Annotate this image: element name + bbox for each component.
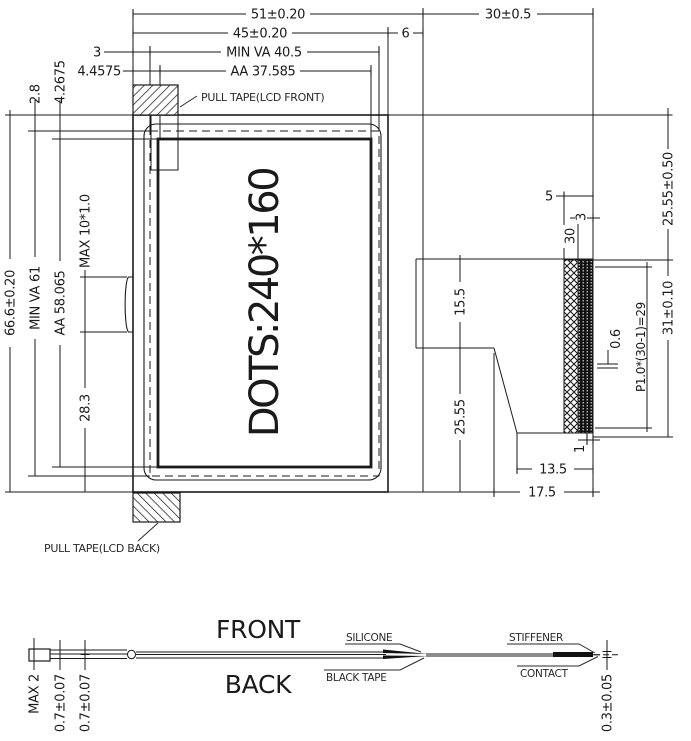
dim-tail-13-5: 13.5	[539, 463, 567, 478]
profile-back-label: BACK	[225, 670, 292, 699]
black-tape-label: BLACK TAPE	[326, 672, 387, 684]
dim-polarizer-top: 0.7±0.07	[54, 674, 69, 732]
dim-va-left-offset: 3	[93, 46, 101, 61]
dim-contact-len: 3	[575, 213, 590, 221]
lcd-mechanical-drawing: 51±0.20 30±0.5 45±0.20 6 MIN VA 40.5 3 A…	[0, 0, 691, 741]
pull-tape-back-label: PULL TAPE(LCD BACK)	[44, 542, 160, 555]
pull-tape-back	[133, 493, 180, 522]
dim-min-va-width: MIN VA 40.5	[226, 46, 302, 61]
dim-total-height: 66.6±0.20	[4, 270, 19, 336]
dim-contact-width: 0.6	[609, 329, 624, 349]
fpc-side-view	[564, 260, 593, 433]
dim-contact-top-offset: 25.55±0.50	[662, 152, 677, 226]
pull-tape-front-under	[151, 115, 178, 170]
dim-stiffener-len: 5	[545, 190, 553, 205]
leader-lines	[138, 96, 598, 670]
dim-pin-count: 30	[564, 228, 579, 244]
silicone-label: SILICONE	[346, 632, 392, 644]
pull-tape-front-label: PULL TAPE(LCD FRONT)	[201, 91, 324, 104]
dim-contact-pitch: P1.0*(30-1)=29	[634, 302, 648, 392]
dim-va-top-offset: 2.8	[29, 84, 44, 104]
lcd-drawing-page: 51±0.20 30±0.5 45±0.20 6 MIN VA 40.5 3 A…	[0, 0, 691, 741]
pull-tape-front	[133, 85, 178, 115]
dim-fold-width: 6	[402, 27, 410, 42]
dim-aa-width: AA 37.585	[230, 65, 295, 80]
dim-fpc-top: 15.5	[454, 288, 469, 316]
dim-aa-top-offset: 4.2675	[54, 60, 69, 104]
profile-end-cap	[29, 649, 50, 661]
dim-glass-width: 45±0.20	[233, 27, 287, 42]
dim-fpc-thickness: 0.3±0.05	[601, 674, 616, 732]
dim-tab-size: MAX 10*1.0	[79, 194, 94, 268]
profile-view	[29, 649, 618, 661]
profile-wedge-top	[383, 650, 428, 655]
dim-max-thickness: MAX 2	[28, 674, 43, 714]
dim-min-va-height: MIN VA 61	[29, 266, 44, 330]
profile-seam	[128, 650, 136, 658]
profile-front-label: FRONT	[216, 615, 301, 644]
profile-stiffener	[553, 652, 593, 657]
dim-aa-height: AA 58.065	[54, 270, 69, 335]
dim-fpc-bottom: 25.55	[454, 399, 469, 435]
dim-fpc-length: 30±0.5	[485, 8, 531, 23]
dim-tab-bottom-offset: 28.3	[79, 394, 94, 422]
display-resolution-text: DOTS:240*160	[242, 169, 288, 437]
side-tab	[125, 277, 133, 332]
dim-connector-height: 31±0.10	[662, 281, 677, 335]
dim-polarizer-bottom: 0.7±0.07	[79, 674, 94, 732]
stiffener-label: STIFFENER	[509, 632, 563, 644]
dim-total-width: 51±0.20	[251, 8, 305, 23]
contact-label: CONTACT	[520, 668, 569, 680]
fpc-contact-area	[578, 260, 593, 433]
dim-tail-17-5: 17.5	[528, 486, 556, 501]
profile-wedge-bottom	[383, 656, 428, 660]
dim-tail-tip: 1	[573, 445, 588, 453]
fpc-stiffener-area	[564, 260, 578, 433]
profile-layers	[50, 650, 386, 659]
dim-aa-left-offset: 4.4575	[77, 65, 121, 80]
